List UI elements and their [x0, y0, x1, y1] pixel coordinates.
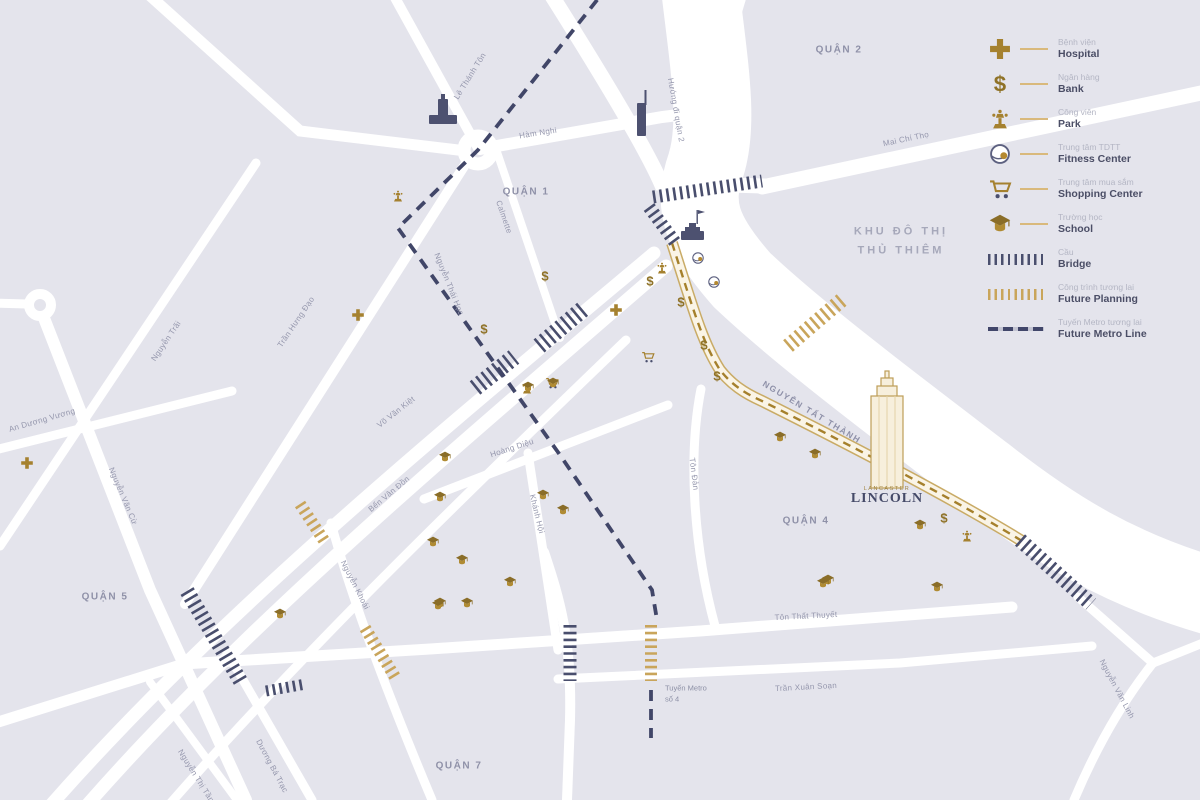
legend-label-en: School	[1058, 223, 1103, 236]
map-legend: Bệnh việnHospital$Ngân hàngBankCông viên…	[988, 36, 1184, 342]
legend-item-future-planning: Công trình tương laiFuture Planning	[988, 281, 1184, 307]
park-icon	[988, 107, 1012, 131]
fitness-icon	[988, 142, 1012, 166]
legend-item-hospital: Bệnh việnHospital	[988, 36, 1184, 62]
legend-item-fitness-center: Trung tâm TDTTFitness Center	[988, 141, 1184, 167]
legend-label-vi: Bệnh viện	[1058, 37, 1099, 48]
legend-label-en: Bridge	[1058, 258, 1091, 271]
legend-label-vi: Ngân hàng	[1058, 72, 1100, 83]
legend-label-vi: Công viên	[1058, 107, 1096, 118]
legend-dash	[1020, 48, 1048, 50]
hatch-dark-swatch	[988, 254, 1044, 265]
legend-item-bank: $Ngân hàngBank	[988, 71, 1184, 97]
svg-text:$: $	[994, 72, 1007, 96]
legend-label-vi: Tuyến Metro tương lai	[1058, 317, 1147, 328]
landmark-bitexco-tower	[637, 90, 647, 136]
metro-swatch	[988, 327, 1044, 331]
cart-icon	[988, 177, 1012, 201]
bank-icon: $	[988, 72, 1012, 96]
location-map: Lê Thánh TônHàm NghiHướng đi quận 2Mai C…	[0, 0, 1200, 800]
legend-item-future-metro-line: Tuyến Metro tương laiFuture Metro Line	[988, 316, 1184, 342]
legend-dash	[1020, 188, 1048, 190]
legend-dash	[1020, 83, 1048, 85]
legend-label-en: Future Metro Line	[1058, 328, 1147, 341]
legend-item-park: Công viênPark	[988, 106, 1184, 132]
legend-dash	[1020, 223, 1048, 225]
hatch-gold-swatch	[988, 289, 1044, 300]
legend-label-en: Park	[1058, 118, 1096, 131]
legend-label-vi: Trung tâm mua sắm	[1058, 177, 1143, 188]
legend-item-bridge: CầuBridge	[988, 246, 1184, 272]
legend-label-vi: Cầu	[1058, 247, 1091, 258]
hospital-icon	[988, 37, 1012, 61]
legend-label-en: Future Planning	[1058, 293, 1138, 306]
legend-label-vi: Công trình tương lai	[1058, 282, 1138, 293]
school-icon	[988, 212, 1012, 236]
legend-label-vi: Trường học	[1058, 212, 1103, 223]
legend-label-en: Shopping Center	[1058, 188, 1143, 201]
legend-dash	[1020, 153, 1048, 155]
legend-label-en: Hospital	[1058, 48, 1099, 61]
legend-item-school: Trường họcSchool	[988, 211, 1184, 237]
legend-label-vi: Trung tâm TDTT	[1058, 142, 1131, 153]
legend-item-shopping-center: Trung tâm mua sắmShopping Center	[988, 176, 1184, 202]
legend-label-en: Fitness Center	[1058, 153, 1131, 166]
legend-dash	[1020, 118, 1048, 120]
legend-label-en: Bank	[1058, 83, 1100, 96]
